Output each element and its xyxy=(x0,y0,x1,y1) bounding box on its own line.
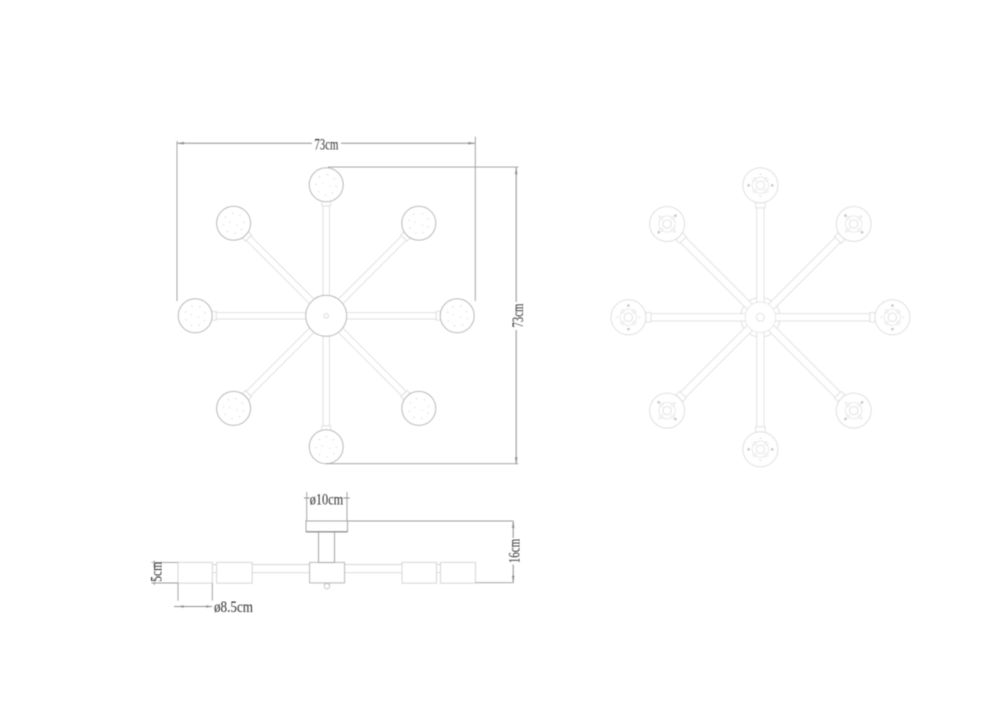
svg-text:5cm: 5cm xyxy=(148,561,165,581)
svg-text:ø8.5cm: ø8.5cm xyxy=(214,599,253,616)
svg-text:16cm: 16cm xyxy=(507,538,524,563)
svg-text:ø10cm: ø10cm xyxy=(310,491,344,508)
svg-text:73cm: 73cm xyxy=(314,136,338,153)
svg-text:73cm: 73cm xyxy=(510,303,527,327)
